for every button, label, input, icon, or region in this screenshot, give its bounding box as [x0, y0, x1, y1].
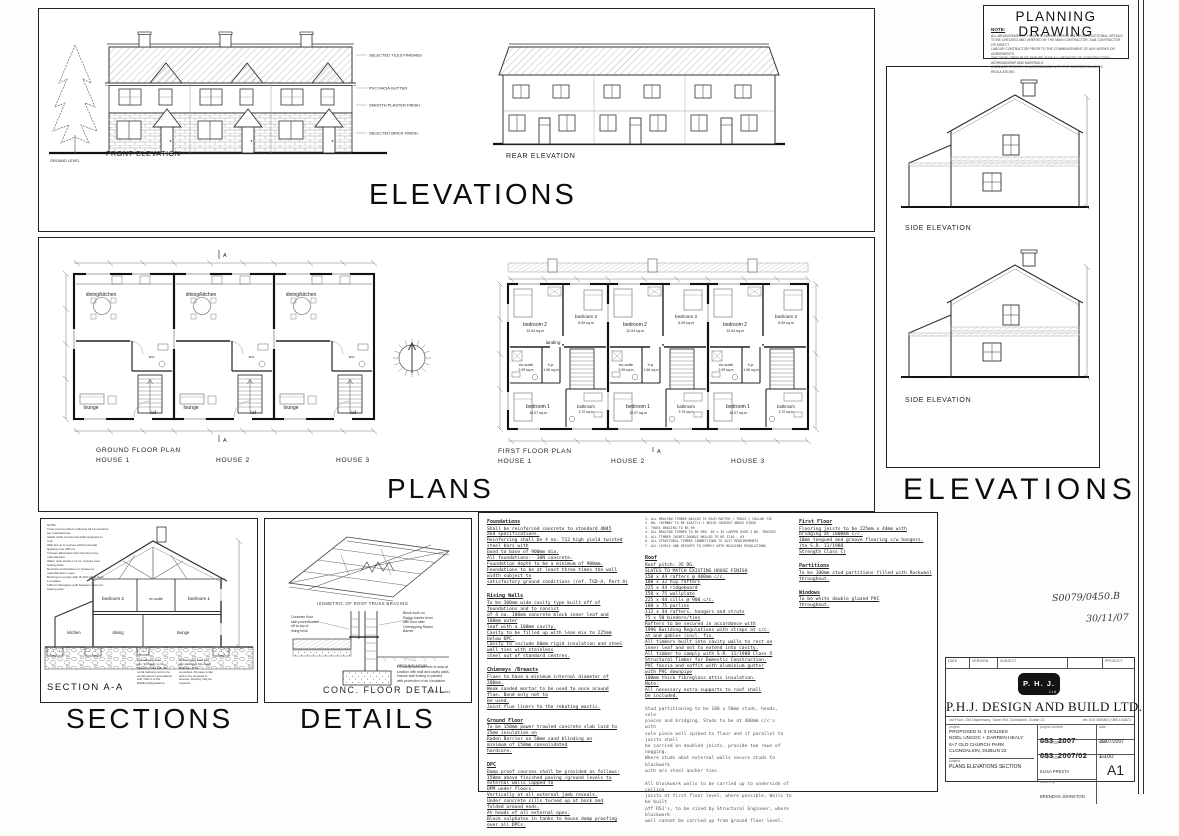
section-marker-bottom-ff: A	[657, 449, 661, 455]
tree-illustration	[53, 45, 97, 153]
drawn-by-label: drawn by	[1040, 781, 1094, 785]
title-block: DATE VERSION SUBJECT PRODUCT P. H. J. Lt…	[945, 657, 1135, 782]
side-elevation-2-drawing	[895, 249, 1095, 399]
spec-body: To be 150mm power trowled concrete slab …	[487, 725, 639, 755]
ground-house2-label: HOUSE 2	[216, 457, 250, 464]
callout-plaster: SMOOTH PLASTER FINISH	[369, 103, 420, 108]
side-elevations-panel: SIDE ELEVATION SIDE ELEVATION	[886, 66, 1100, 468]
sections-panel: bedroom 2 en-suite bedroom 1 kitchen din…	[40, 518, 258, 703]
sheet: { "planning_box": { "title": "PLANNING D…	[0, 0, 1179, 794]
revision-spacer	[1068, 658, 1102, 668]
sheet-border-line-inner	[1143, 0, 1144, 794]
conc-floor-detail-scale: (not to scale)	[427, 689, 450, 694]
spec-heading: Chimneys /Breasts	[487, 667, 639, 673]
ground-floor-plan-caption: GROUND FLOOR PLAN	[96, 447, 181, 454]
callout-tiles: SELECTED TILES FINISHES	[369, 53, 422, 58]
spec-body-plain: All blockwork walls to be carried up to …	[645, 782, 795, 825]
spec-heading: Windows	[799, 590, 933, 596]
elevations-panel: SELECTED TILES FINISHES PVC FACIA GUTTER…	[38, 8, 875, 232]
subject-value: PLANS ELEVATIONS SECTION	[949, 764, 1034, 770]
spec-column-2: 1. ALL BRACING TIMBER NAILED TO EACH RAF…	[645, 517, 795, 832]
planning-drawing-box: PLANNING DRAWING NOTE: ALL MEASUREMENTS,…	[983, 5, 1129, 59]
drawing-number-label: drawing number	[1040, 741, 1094, 745]
drawn-by-value: BRENDAN JOHNSTON	[1040, 794, 1085, 799]
rear-elevation-label: REAR ELEVATION	[506, 153, 575, 160]
isometric-caption: ISOMETRIC OF ROOF TRUSS BRACING	[317, 601, 408, 606]
north-arrow-icon	[389, 335, 435, 381]
section-room-lounge: lounge	[177, 630, 190, 635]
project-value: PROPOSED N. 3 HOUSES NOEL UNGOC + DARREN…	[949, 730, 1034, 756]
spec-heading: First Floor	[799, 519, 933, 525]
callout-gutter: PVC FACIA GUTTER	[369, 86, 407, 91]
company-phone: tel: 015 400063 | 085 103871	[1083, 718, 1131, 723]
size-value: A1	[1099, 762, 1132, 778]
details-panel: ISOMETRIC OF ROOF TRUSS BRACING GROUND L…	[264, 518, 472, 703]
first-house2-label: HOUSE 2	[611, 458, 645, 465]
spec-column-1: FoundationsShall be reinforced concrete …	[487, 519, 639, 836]
ground-house1-label: HOUSE 1	[96, 457, 130, 464]
designed-by-value: ELISA PRESTA	[1040, 769, 1069, 774]
scale-label: scale	[1099, 741, 1132, 745]
spec-heading: Foundations	[487, 519, 639, 525]
revision-row: DATE VERSION SUBJECT PRODUCT	[946, 658, 1134, 669]
ground-level-label: GROUND LEVEL	[50, 159, 80, 163]
spec-body: Flooring joists to be 225mm x 44mm with …	[799, 527, 933, 557]
spec-heading: Roof	[645, 555, 795, 561]
spec-body: Shall be reinforced concrete to standard…	[487, 527, 639, 587]
title-block-right: project number 053_2007 date 30/07/2007 …	[1038, 725, 1134, 781]
specifications-panel: FoundationsShall be reinforced concrete …	[478, 512, 938, 792]
project-cell: project PROPOSED N. 3 HOUSES NOEL UNGOC …	[946, 725, 1038, 781]
designed-by-label: designed by	[1040, 756, 1094, 760]
section-notes-bottom-left: Foundations to be min. 900 deep to be ag…	[137, 659, 175, 686]
spec-heading: Ground Floor	[487, 718, 639, 724]
date-label: date	[1099, 726, 1132, 730]
section-marker-bottom: A	[223, 438, 227, 444]
spec-heading: DPC	[487, 762, 639, 768]
title-block-grid: project PROPOSED N. 3 HOUSES NOEL UNGOC …	[946, 725, 1134, 781]
section-marker-top: A	[223, 253, 227, 259]
spec-body: Damp proof courses shall be provided as …	[487, 770, 639, 830]
handwritten-date: 30/11/07	[1086, 612, 1129, 624]
section-room-kitchen: kitchen	[67, 630, 81, 635]
spec-body: Roof pitch: 35 DG. SLATES TO MATCH EXIST…	[645, 563, 795, 700]
first-house3-label: HOUSE 3	[731, 458, 765, 465]
size-label: size	[1099, 756, 1132, 760]
revision-subject-header: SUBJECT	[998, 658, 1068, 668]
spec-note-list: 1. ALL BRACING TIMBER NAILED TO EACH RAF…	[645, 517, 795, 548]
section-notes-top: NOTE: Truss roof members nailed at all c…	[47, 523, 147, 591]
revision-product-header: PRODUCT	[1102, 658, 1134, 668]
spec-body: To be white double glazed PVC throughout…	[799, 597, 933, 609]
phj-logo: P. H. J. Ltd	[1018, 673, 1060, 695]
detail-annotation-left: Concrete floor slab powerfloated off to …	[291, 615, 335, 633]
front-elevation-drawing: SELECTED TILES FINISHES PVC FACIA GUTTER…	[47, 31, 427, 171]
address-bar: 1st Floor, Old Dispensary, Tower Rd, Clo…	[946, 716, 1134, 725]
phj-logo-ltd: Ltd	[1049, 691, 1057, 694]
section-room-bedroom2: bedroom 2	[102, 596, 124, 601]
plans-panel: A A GROUND FLOOR PLAN HOUSE 1 HOUSE 2 HO…	[38, 237, 875, 512]
spec-heading: Rising Walls	[487, 593, 639, 599]
section-room-dining: dining	[112, 630, 124, 635]
side-elevations-title: ELEVATIONS	[903, 473, 1137, 507]
roof-truss-isometric-drawing	[281, 525, 456, 597]
sections-title: SECTIONS	[66, 703, 233, 735]
sheet-border-line-outer	[1138, 0, 1139, 794]
room-label-landing: landing	[546, 340, 561, 345]
first-house1-label: HOUSE 1	[498, 458, 532, 465]
section-notes-bottom-right: Where pipes pass thro' foundations a Str…	[179, 659, 219, 686]
first-floor-plan-drawing: landing A	[493, 259, 823, 454]
plans-title: PLANS	[387, 473, 494, 505]
company-address: 1st Floor, Old Dispensary, Tower Rd, Clo…	[949, 718, 1045, 723]
planning-note-text: ALL MEASUREMENTS, HEIGHTS, AREAS, LEVELS…	[991, 34, 1124, 74]
first-floor-plan-caption: FIRST FLOOR PLAN	[498, 448, 572, 455]
revision-version-header: VERSION	[970, 658, 998, 668]
spec-body: Flues to have a minimum internal diamete…	[487, 675, 639, 711]
company-name: P.H.J. DESIGN AND BUILD LTD.	[946, 699, 1134, 715]
side-elevation-1-label: SIDE ELEVATION	[905, 225, 971, 232]
spec-body: To be 300mm wide cavity type built off o…	[487, 601, 639, 661]
details-title: DETAILS	[300, 703, 436, 735]
spec-column-3: First FloorFlooring joists to be 225mm x…	[799, 519, 933, 616]
front-elevation-callouts: SELECTED TILES FINISHES PVC FACIA GUTTER…	[356, 53, 422, 136]
planning-note-heading: NOTE:	[991, 27, 1005, 32]
side-elevation-2-label: SIDE ELEVATION	[905, 397, 971, 404]
handwritten-reference: S0079/0450.B	[1052, 591, 1120, 604]
callout-brick: SELECTED BRICK FINISH	[369, 131, 418, 136]
rear-elevation-drawing	[489, 29, 789, 164]
elevations-title: ELEVATIONS	[369, 179, 577, 212]
project-number-label: project number	[1040, 726, 1094, 730]
side-elevation-1-drawing	[895, 79, 1095, 229]
phj-logo-text: P. H. J.	[1023, 679, 1055, 688]
spec-body: To be 100mm stud partitions filled with …	[799, 571, 933, 583]
ground-house3-label: HOUSE 3	[336, 457, 370, 464]
revision-date-header: DATE	[946, 658, 970, 668]
detail-annotation-bottom: Fill cavity with lean mix to seal at jun…	[397, 665, 463, 683]
section-room-bedroom1: bedroom 1	[188, 596, 210, 601]
section-aa-label: SECTION A-A	[47, 682, 124, 693]
spec-heading: Partitions	[799, 563, 933, 569]
ground-floor-plan-drawing: A A	[59, 249, 389, 444]
front-elevation-label: FRONT ELEVATION	[106, 151, 181, 158]
spec-body-plain: Stud partitioning to be 100 x 50mm studs…	[645, 707, 795, 775]
detail-annotation-right: Block work on Radon barrier level with f…	[403, 611, 459, 634]
section-room-ensuite: en-suite	[149, 597, 163, 601]
